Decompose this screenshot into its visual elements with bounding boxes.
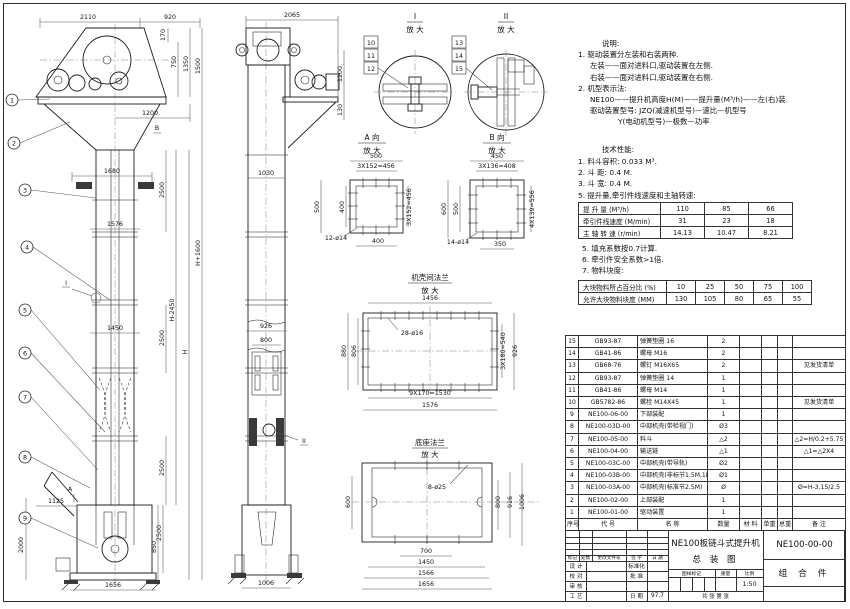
dim-a-400-left: 400 (339, 201, 346, 213)
dim-bs-holes: 8-ø25 (428, 484, 446, 491)
bom-row: 6NE100-04-00输送链△1△1=△2X4 (566, 445, 846, 457)
dim-1006: 1006 (258, 580, 274, 587)
performance-items-2: 5. 填充系数按0.7计算. 6. 牵引件安全系数>1倍. 7. 物料块度: (582, 243, 842, 277)
bom-row: 14GB41-86螺母 M162 (566, 348, 846, 360)
dim-fl-holes: 28-ø16 (401, 330, 423, 337)
detail-ii-marker: II (302, 438, 306, 445)
side-elevation-view (228, 22, 339, 586)
date-label: 日 期 (626, 591, 647, 601)
scale-value: 1:50 (736, 577, 763, 591)
bom-row: 8NE100-03D-00中部机壳(带检视门)Ø3 (566, 421, 846, 433)
title-block: 标记 处数 更改文件号 签 字 日 期 设 计 标准化 校 对 批 准 审 核 … (565, 530, 845, 602)
role-standardization: 标准化 (626, 561, 647, 571)
detail-i-marker: I (65, 280, 67, 287)
lump-size-table: 大块物料所占百分比 (%) 10255075100 允许大块物料块度 (MM) … (578, 280, 812, 305)
balloon-7: 7 (23, 394, 27, 402)
dim-b-holes: 14-ø14 (447, 239, 469, 246)
bom-row: 7NE100-05-00料斗△2△2=H/0.2+5.75 (566, 433, 846, 445)
role-design: 设 计 (566, 561, 586, 571)
table-row: 允许大块物料块度 (MM) 130105806555 (579, 293, 812, 305)
balloon-2: 2 (12, 140, 16, 148)
dim-1576: 1576 (107, 221, 123, 228)
dim-1200-side: 1200 (337, 66, 344, 82)
date-value: 97.7 (647, 591, 668, 601)
base-flange-title: 底座法兰 (415, 437, 445, 447)
detail-view-ii: II 放 大 13 14 15 (452, 12, 548, 136)
casing-flange-title: 机壳间法兰 (411, 272, 449, 282)
dim-2000: 2000 (18, 537, 25, 553)
bom-row: 4NE100-03B-00中部机壳(非标节1.5M,1M)Ø1 (566, 470, 846, 482)
dim-2065: 2065 (284, 12, 300, 19)
drawing-title: NE100板链斗式提升机 (668, 534, 763, 552)
bom-row: 3NE100-03A-00中部机壳(标准节2.5M)ØØ=H-3.15/2.5 (566, 482, 846, 494)
balloon-9: 9 (23, 515, 27, 523)
bom-header-row: 序号代 号名 称数量材 料单重总重备 注 (566, 519, 846, 531)
dim-1200-front: 1200 (142, 110, 158, 117)
notes-block: 说明: 1. 驱动装置分左装和右装两种. 左装——面对进料口,驱动装置在左侧. … (578, 38, 844, 128)
dim-a-500-left: 500 (314, 201, 321, 213)
note-line: 1. 驱动装置分左装和右装两种. (578, 49, 844, 60)
detail-i-title: I (414, 12, 416, 21)
table-row: 提 升 量 (M³/h) 1108566 (579, 203, 793, 215)
dim-bs-600: 600 (345, 496, 352, 508)
dim-1450: 1450 (107, 325, 123, 332)
bom-row: 1NE100-01-00驱动装置1 (566, 506, 846, 518)
dim-1656-front: 1656 (105, 582, 121, 589)
dim-a-500-top: 500 (370, 153, 382, 160)
view-marker-a: A (68, 486, 73, 493)
bom-row: 9NE100-06-00下部装配1 (566, 409, 846, 421)
weight-label: 重量 (715, 569, 736, 577)
row-label: 允许大块物料块度 (MM) (579, 293, 667, 305)
bom-row: 5NE100-03C-00中部机壳(带导轨)Ø2 (566, 458, 846, 470)
bom-row: 12GB93-87弹簧垫圈 141 (566, 372, 846, 384)
note-line: 左装——面对进料口,驱动装置在左侧. (578, 60, 844, 71)
role-review: 审 核 (566, 581, 586, 591)
dim-2500-c: 2500 (159, 460, 166, 476)
dim-b-500: 500 (453, 203, 460, 215)
scale-label: 比例 (736, 569, 763, 577)
row-label: 主 轴 转 速 (r/min) (579, 227, 661, 239)
dim-bs-916: 916 (507, 496, 514, 508)
bom-table: 15GB93-87弹簧垫圈 162 14GB41-86螺母 M162 13GB6… (565, 335, 846, 531)
note-line: NE100——提升机高度H(M)——提升量(M³/h)——左(右)装. (578, 94, 844, 105)
row-label: 大块物料所占百分比 (%) (579, 281, 667, 293)
view-marker-b: B (155, 125, 159, 132)
balloon-15: 15 (455, 65, 463, 73)
dim-b-556: 4X139=556 (529, 190, 536, 228)
balloon-11: 11 (367, 52, 375, 60)
dim-1680: 1680 (104, 168, 120, 175)
perf-item: 6. 牵引件安全系数>1倍. (582, 254, 842, 265)
dim-1030: 1030 (258, 170, 274, 177)
dim-b-600: 600 (441, 203, 448, 215)
dim-fl-806: 806 (351, 345, 358, 357)
detail-i-zoom-label: 放 大 (406, 24, 424, 34)
dim-fl-926: 926 (512, 345, 519, 357)
dim-b-408: 3X136=408 (478, 163, 516, 170)
balloon-13: 13 (455, 39, 463, 47)
balloon-14: 14 (455, 52, 463, 60)
dim-fl-1576: 1576 (422, 402, 438, 409)
front-elevation-view (36, 24, 176, 590)
dim-bs-1006: 1006 (519, 494, 526, 510)
perf-item: 3. 斗 宽: 0.4 M. (578, 178, 844, 189)
view-a-flange: A 向 放 大 500 3X152=456 500 400 3X152=456 … (314, 132, 413, 246)
dim-2500-a: 2500 (159, 182, 166, 198)
dim-b-350: 350 (494, 241, 506, 248)
front-balloons: 1 2 3 4 5 6 7 8 9 (6, 94, 110, 548)
front-dimensions: 2110 920 170 750 1350 1500 1200 B 1680 2… (18, 14, 202, 590)
perf-item: 5. 填充系数按0.7计算. (582, 243, 842, 254)
dim-fl-1456: 1456 (422, 295, 438, 302)
dim-1500: 1500 (195, 58, 202, 74)
bom-row: 15GB93-87弹簧垫圈 162 (566, 336, 846, 348)
perf-item: 7. 物料块度: (582, 265, 842, 276)
casing-flange-view: 机壳间法兰 放 大 1456 28-ø16 880 806 3X180=540 … (341, 272, 519, 410)
dim-fl-540: 3X180=540 (500, 332, 507, 370)
bom-row: 10GB5782-86螺栓 M14X451见发货清单 (566, 397, 846, 409)
table-row: 大块物料所占百分比 (%) 10255075100 (579, 281, 812, 293)
dim-bs-1656: 1656 (418, 581, 434, 588)
dim-fl-880: 880 (341, 345, 348, 357)
dim-170: 170 (160, 29, 167, 41)
balloon-5: 5 (23, 307, 27, 315)
row-label: 牵引件线速度 (M/min) (579, 215, 661, 227)
dim-a-holes: 12-ø14 (325, 235, 347, 242)
dim-a-400-bottom: 400 (372, 238, 384, 245)
dim-750: 750 (171, 56, 178, 68)
dim-2500-d: 2500 (156, 525, 163, 541)
table-row: 牵引件线速度 (M/min) 312318 (579, 215, 793, 227)
detail-view-i: I 放 大 10 11 12 (364, 12, 456, 134)
balloon-3: 3 (23, 187, 27, 195)
note-line: 驱动装置型号: JZQ(减速机型号)—速比—机型号 (578, 105, 844, 116)
dim-850: 850 (151, 541, 158, 553)
dim-130: 130 (337, 104, 344, 116)
dim-bs-800: 800 (495, 496, 502, 508)
dim-bs-1566: 1566 (418, 570, 434, 577)
rev-col-docno: 更改文件号 (592, 555, 626, 561)
item-type: 组 合 件 (763, 559, 846, 586)
detail-ii-zoom-label: 放 大 (497, 24, 515, 34)
dim-a-456-top: 3X152=456 (357, 163, 395, 170)
detail-ii-title: II (504, 12, 508, 21)
dim-1125: 1125 (48, 498, 64, 505)
dim-b-450: 450 (491, 153, 503, 160)
bom-row: 2NE100-02-00上部装配1 (566, 494, 846, 506)
balloon-10: 10 (367, 39, 375, 47)
dim-fl-1530: 9X170=1530 (409, 390, 451, 397)
view-b-title: B 向 (489, 132, 504, 142)
dim-920: 920 (164, 14, 176, 21)
drawing-subtitle: 总 装 图 (668, 551, 763, 567)
dim-2500-b: 2500 (159, 330, 166, 346)
bom-row: 13GB68-76螺钉 M16X652见发货清单 (566, 360, 846, 372)
dim-800: 800 (260, 337, 272, 344)
perf-item: 5. 提升量,牵引件线速度和主轴转速: (578, 190, 844, 201)
note-line: 右装——面对进料口,驱动装置在右侧. (578, 72, 844, 83)
base-flange-zoom-label: 放 大 (421, 449, 439, 459)
role-process: 工 艺 (566, 591, 586, 601)
dim-1350: 1350 (183, 56, 190, 72)
view-b-flange: B 向 放 大 450 3X136=408 600 500 4X139=556 … (441, 132, 536, 249)
dim-h-minus-2450: H-2450 (169, 298, 176, 321)
sheet-count: 共 张 第 张 (668, 591, 763, 601)
perf-item: 2. 斗 距: 0.4 M. (578, 167, 844, 178)
dim-h-plus-1600: H+1600 (195, 240, 202, 266)
balloon-4: 4 (25, 244, 29, 252)
drawing-number: NE100-00-00 (763, 531, 846, 559)
dim-a-456-right: 3X152=456 (406, 188, 413, 226)
balloon-6: 6 (23, 350, 27, 358)
notes-heading: 说明: (578, 38, 844, 49)
perf-item: 1. 料斗容积: 0.033 M³. (578, 156, 844, 167)
dim-926-side: 926 (260, 323, 272, 330)
balloon-8: 8 (23, 454, 27, 462)
dim-bs-1450: 1450 (418, 559, 434, 566)
capacity-table: 提 升 量 (M³/h) 1108566 牵引件线速度 (M/min) 3123… (578, 202, 793, 239)
dim-h: H (182, 349, 189, 354)
role-check: 校 对 (566, 571, 586, 581)
bom-row: 11GB41-86螺母 M141 (566, 384, 846, 396)
balloon-12: 12 (367, 65, 375, 73)
role-approve: 批 准 (626, 571, 647, 581)
dim-2110: 2110 (80, 14, 96, 21)
performance-items: 1. 料斗容积: 0.033 M³. 2. 斗 距: 0.4 M. 3. 斗 宽… (578, 156, 844, 201)
base-flange-view: 底座法兰 放 大 8-ø25 600 800 916 1006 700 1450… (345, 437, 540, 589)
performance-heading: 技术性能: (578, 144, 634, 155)
view-a-title: A 向 (364, 132, 379, 142)
stamp-label: 图样标记 (668, 569, 715, 577)
casing-flange-zoom-label: 放 大 (421, 285, 439, 295)
balloon-1: 1 (10, 97, 14, 105)
note-line: 2. 机型表示法: (578, 83, 844, 94)
rev-col-date: 日 期 (647, 555, 668, 561)
row-label: 提 升 量 (M³/h) (579, 203, 661, 215)
dim-bs-700: 700 (420, 548, 432, 555)
table-row: 主 轴 转 速 (r/min) 14.1310.478.21 (579, 227, 793, 239)
note-line: Y(电动机型号)—极数—功率 (578, 116, 844, 127)
